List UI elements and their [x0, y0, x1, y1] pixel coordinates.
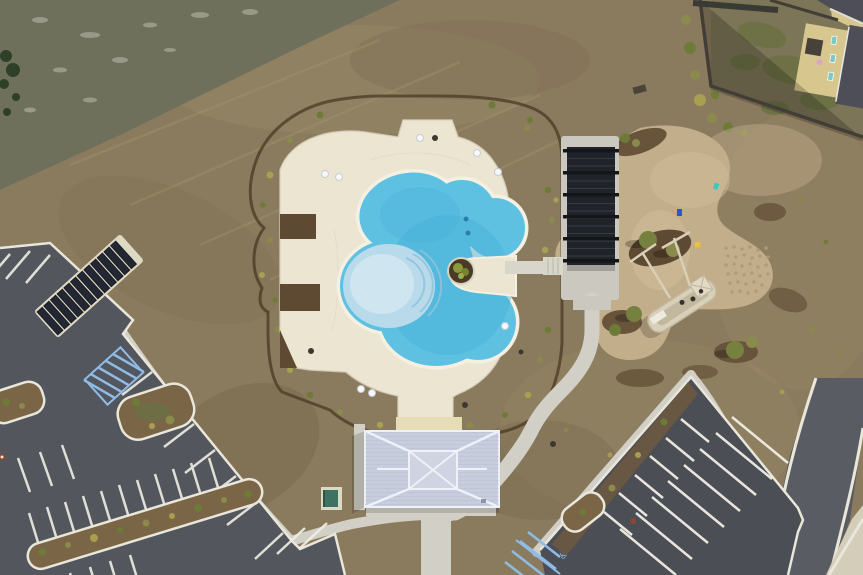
window	[831, 36, 837, 45]
aerial-photo: ♿	[0, 0, 863, 575]
pool-light	[464, 217, 469, 222]
roof-shadow	[352, 431, 365, 514]
pergola-canopy	[567, 147, 615, 265]
path-trunk	[421, 513, 451, 575]
entry-wall	[396, 417, 462, 431]
pavement-stain	[630, 518, 636, 524]
field-debris	[550, 441, 556, 447]
roof-vent	[481, 499, 486, 503]
pool-light	[466, 231, 471, 236]
window	[830, 54, 836, 63]
house-deck	[805, 38, 824, 57]
deck-notch	[280, 214, 316, 239]
clubhouse	[352, 417, 499, 514]
toy-yellow	[695, 242, 701, 248]
window	[828, 72, 834, 81]
toy-blue	[677, 209, 682, 216]
clubhouse-roof	[365, 431, 499, 507]
deck-notch	[280, 284, 320, 311]
utility-box	[321, 487, 342, 510]
aerial-scene: ♿	[0, 0, 863, 575]
